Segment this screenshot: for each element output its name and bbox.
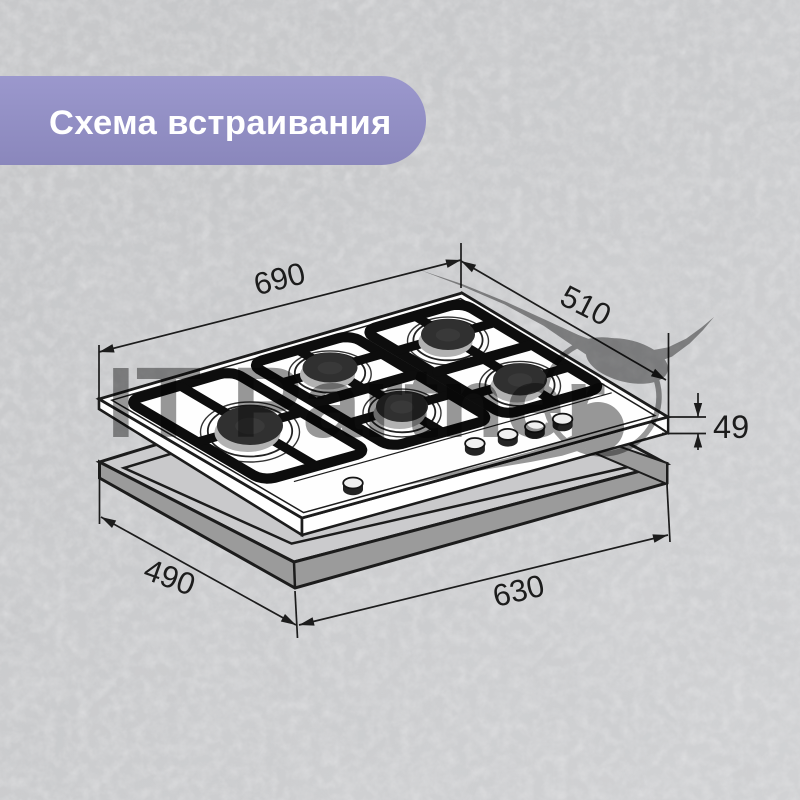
svg-text:IT Partner: IT Partner — [106, 347, 606, 459]
svg-text:49: 49 — [713, 409, 749, 445]
svg-text:Схема встраивания: Схема встраивания — [49, 104, 392, 142]
